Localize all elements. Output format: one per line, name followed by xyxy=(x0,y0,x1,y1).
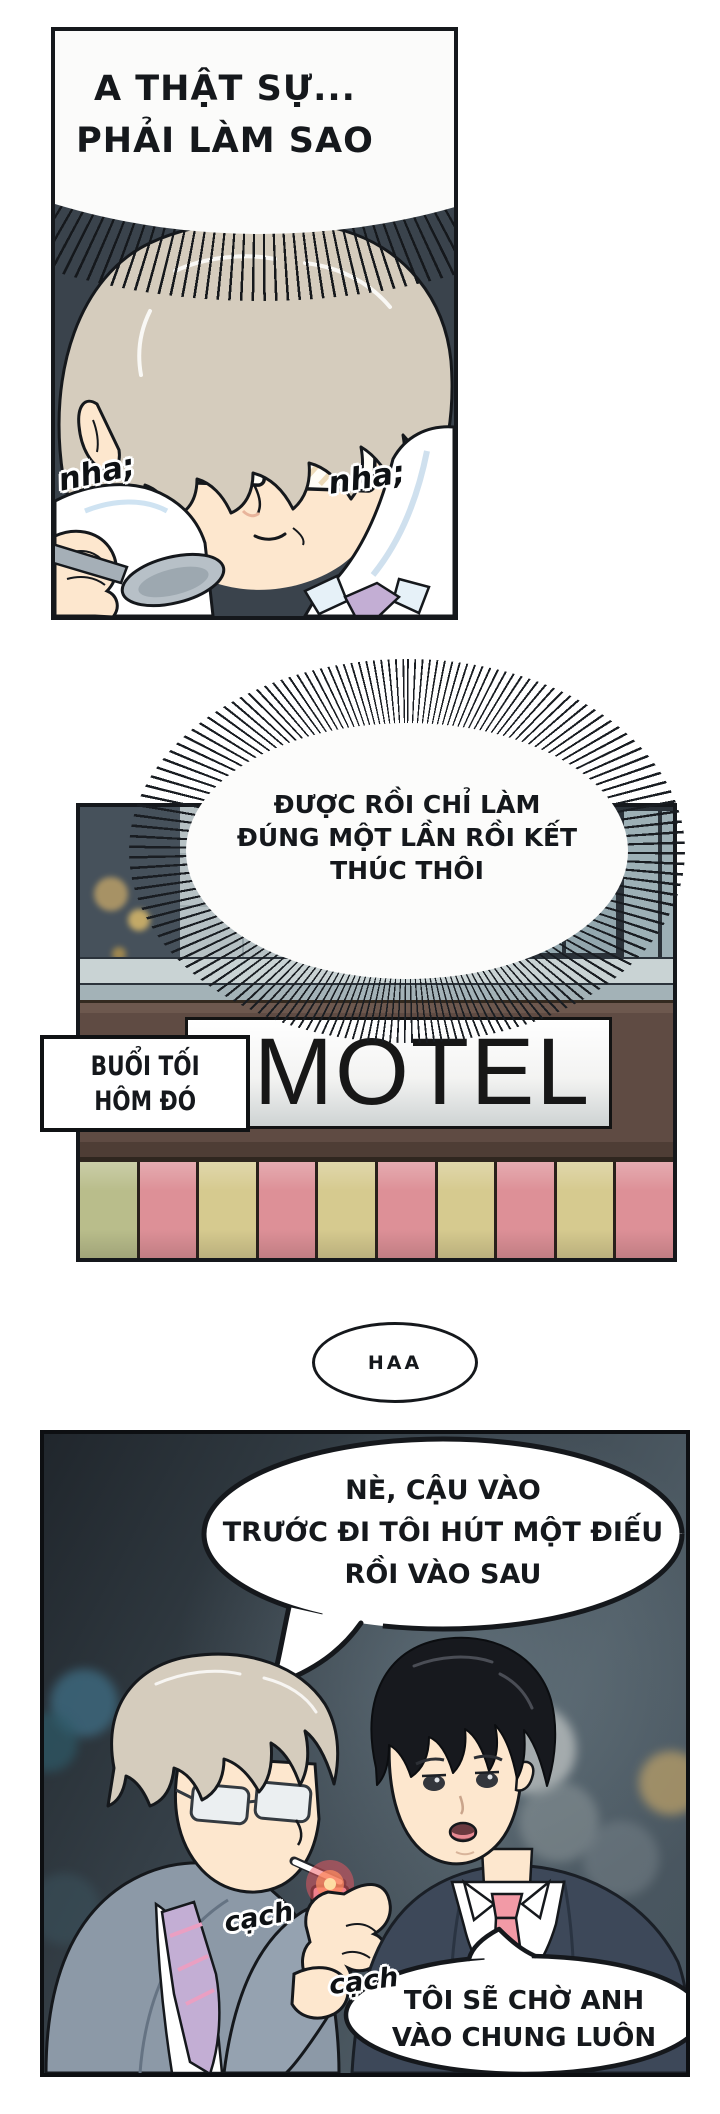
panel-1: A THẬT SỰ... PHẢI LÀM SAO nha; nha; xyxy=(51,27,458,620)
awning-stripe xyxy=(318,1162,378,1258)
awning-stripe xyxy=(438,1162,498,1258)
eye xyxy=(476,1772,498,1788)
caption-text: BUỔI TỐI HÔM ĐÓ xyxy=(90,1049,199,1119)
speech-bubble-text: A THẬT SỰ... PHẢI LÀM SAO xyxy=(55,63,395,167)
burst-bubble-text: ĐƯỢC RỒI CHỈ LÀM ĐÚNG MỘT LẦN RỒI KẾT TH… xyxy=(207,788,607,887)
panel-3: NÈ, CẬU VÀO TRƯỚC ĐI TÔI HÚT MỘT ĐIẾU RỒ… xyxy=(40,1430,690,2077)
awning xyxy=(80,1157,673,1258)
awning-stripe xyxy=(140,1162,200,1258)
light-glow xyxy=(94,877,128,911)
man-glasses xyxy=(46,1654,390,2073)
eye xyxy=(423,1775,445,1791)
reply-bubble-text: TÔI SẼ CHỜ ANH VÀO CHUNG LUÔN xyxy=(374,1983,674,2057)
awning-stripe xyxy=(80,1162,140,1258)
sfx-sigh-text: HAA xyxy=(368,1352,422,1374)
pink-tie xyxy=(492,1894,522,1918)
awning-stripe xyxy=(497,1162,557,1258)
sfx-sigh-bubble: HAA xyxy=(312,1322,478,1403)
awning-stripe xyxy=(199,1162,259,1258)
awning-stripe xyxy=(378,1162,438,1258)
caption-box: BUỔI TỐI HÔM ĐÓ xyxy=(40,1035,250,1132)
awning-stripe xyxy=(259,1162,319,1258)
comic-page: A THẬT SỰ... PHẢI LÀM SAO nha; nha; MOTE… xyxy=(0,0,720,2114)
speech-bubble-text: NÈ, CẬU VÀO TRƯỚC ĐI TÔI HÚT MỘT ĐIẾU RỒ… xyxy=(203,1470,683,1596)
awning-stripe xyxy=(557,1162,617,1258)
awning-stripe xyxy=(616,1162,673,1258)
